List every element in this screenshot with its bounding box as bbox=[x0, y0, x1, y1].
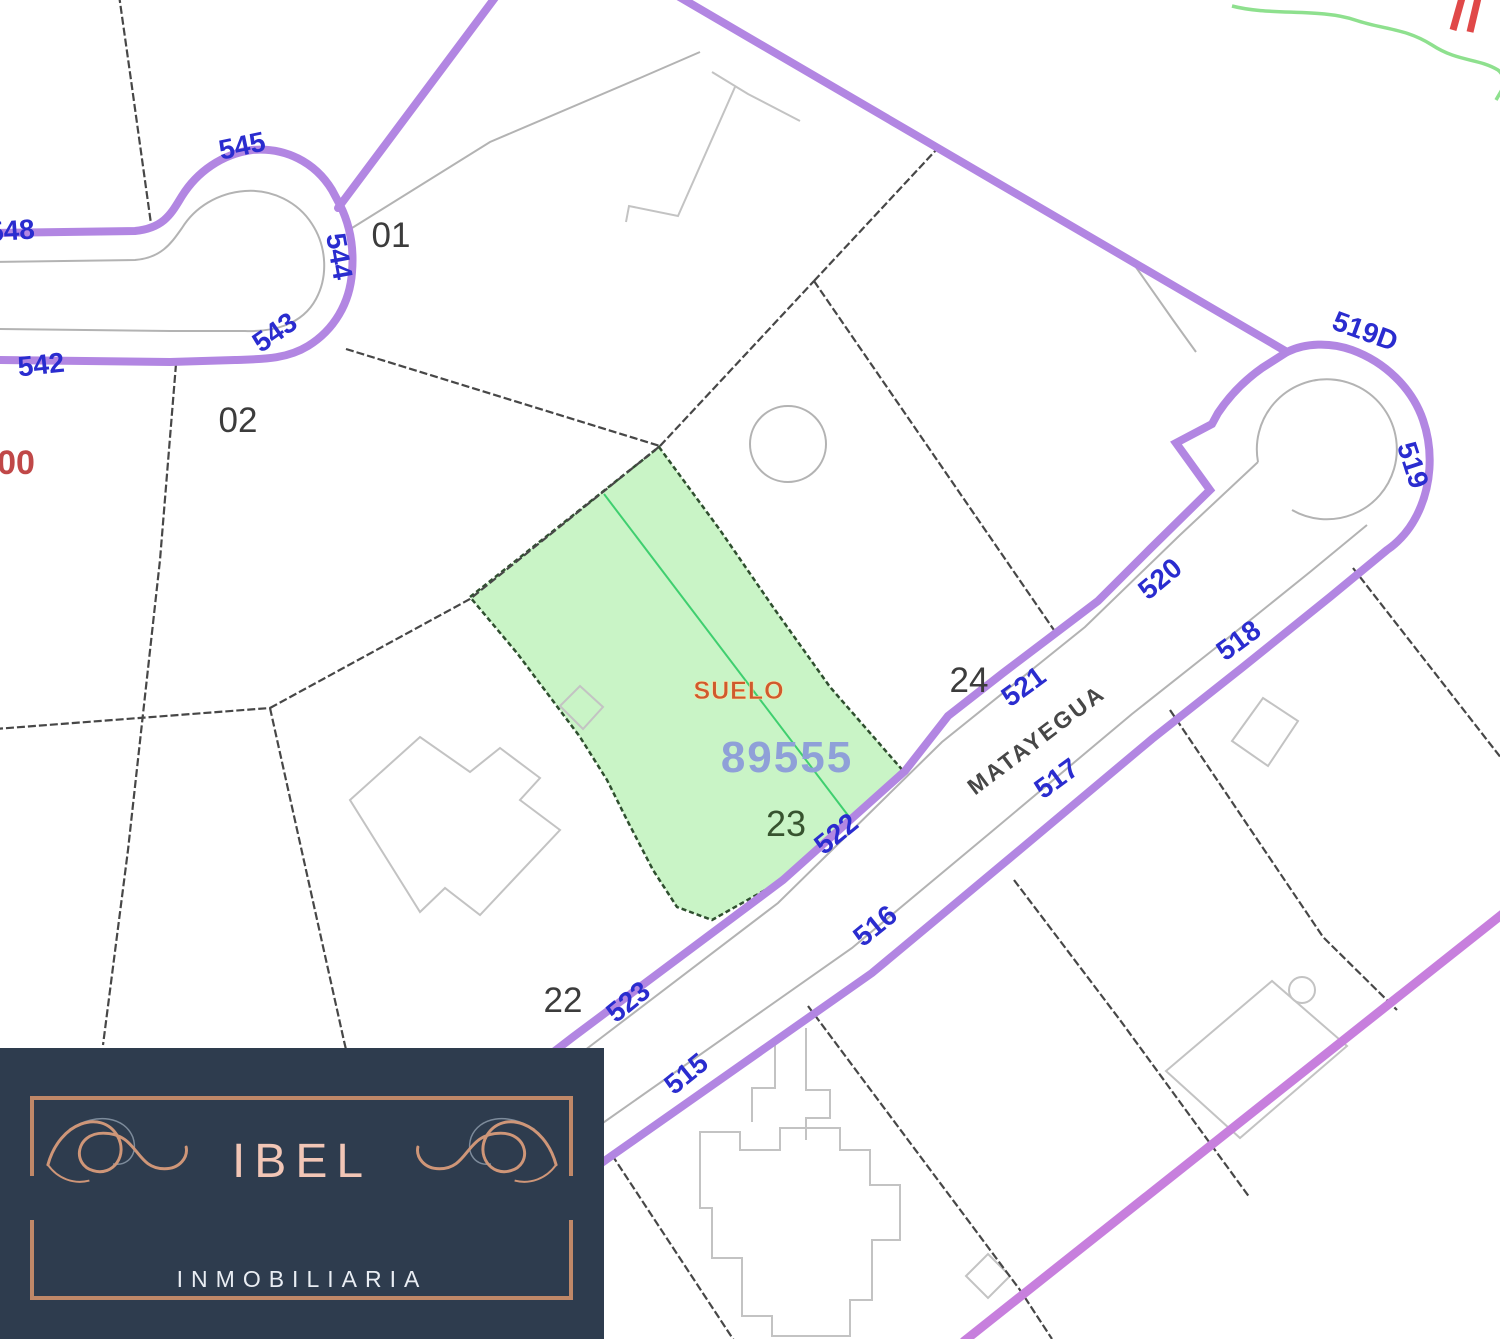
parcel-label-01: 01 bbox=[372, 216, 411, 255]
partial-ref-label: 00 bbox=[0, 444, 35, 482]
parcel-label-24: 24 bbox=[950, 661, 989, 700]
parcel-label-02: 02 bbox=[219, 401, 258, 440]
logo-tagline: INMOBILIARIA bbox=[0, 1266, 604, 1293]
land-use-label: SUELO bbox=[693, 677, 784, 705]
parcel-label-23: 23 bbox=[766, 803, 806, 844]
contour-line bbox=[1232, 6, 1500, 100]
street-label-542: 542 bbox=[16, 347, 66, 383]
red-mark bbox=[1453, 0, 1478, 32]
circle-feature bbox=[750, 406, 826, 482]
parcel-label-22: 22 bbox=[544, 981, 583, 1020]
logo-brand-name: IBEL bbox=[0, 1134, 604, 1189]
street-label-548: 548 bbox=[0, 213, 36, 247]
zone-boundary-road bbox=[963, 912, 1500, 1339]
cadastral-ref-label: 89555 bbox=[721, 733, 853, 782]
cadastral-map-page: 545 548 542 543 544 519D 519 520 521 522… bbox=[0, 0, 1500, 1339]
street-label-545: 545 bbox=[216, 126, 268, 166]
agency-logo: IBEL INMOBILIARIA bbox=[0, 1048, 604, 1339]
